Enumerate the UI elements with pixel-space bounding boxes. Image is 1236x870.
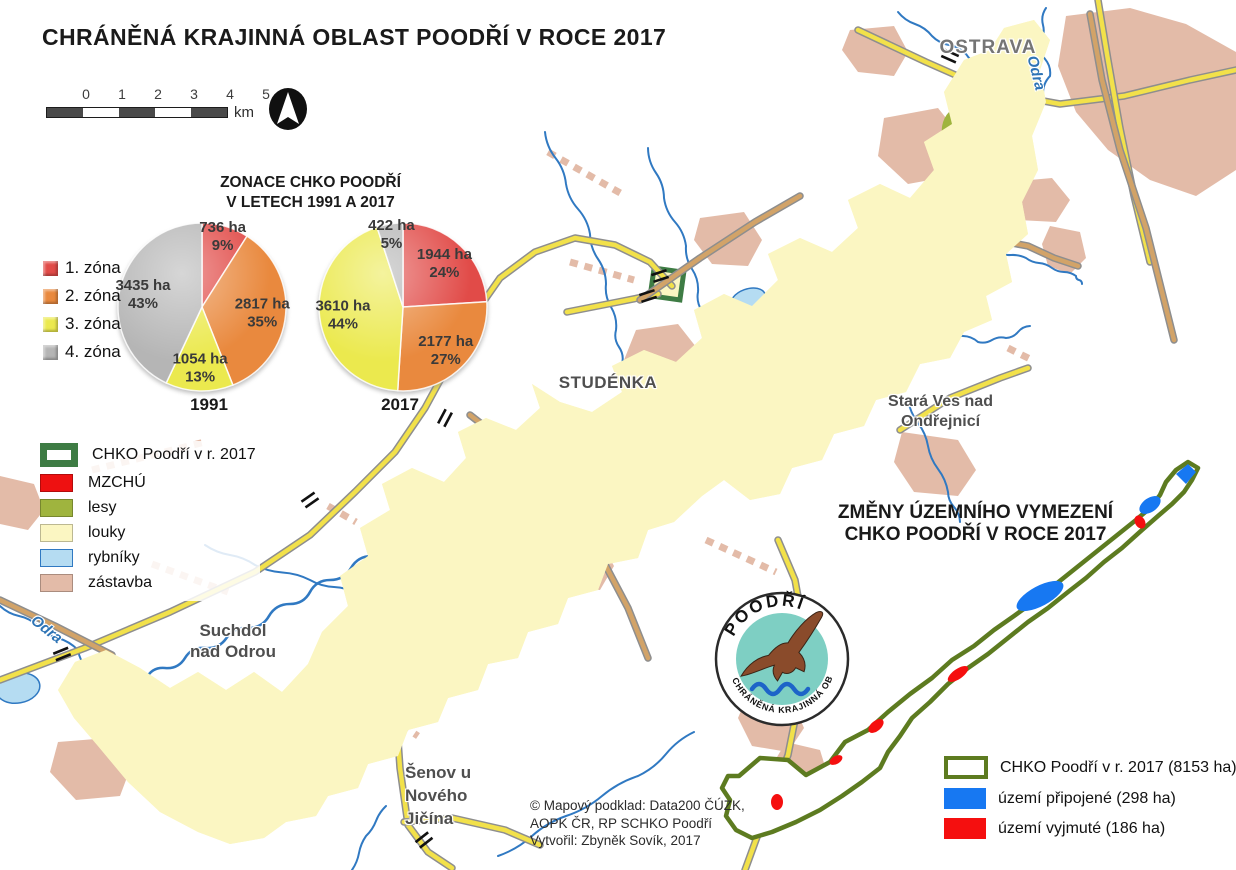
zone4-swatch bbox=[43, 345, 58, 360]
inset-chko-label: CHKO Poodří v r. 2017 (8153 ha) bbox=[1000, 759, 1236, 777]
credits: © Mapový podklad: Data200 ČÚZK, AOPK ČR,… bbox=[530, 797, 745, 850]
scale-tick: 0 bbox=[76, 86, 96, 102]
scale-tick: 3 bbox=[184, 86, 204, 102]
senov-line2: Nového bbox=[405, 785, 500, 808]
pie-year-2017: 2017 bbox=[365, 395, 435, 415]
inset-legend-row-removed: území vyjmuté (186 ha) bbox=[944, 818, 1236, 839]
credits-line2: AOPK ČR, RP SCHKO Poodří bbox=[530, 815, 745, 833]
zone-legend-row: 2. zóna bbox=[43, 286, 121, 306]
zone2-label: 2. zóna bbox=[65, 286, 121, 306]
poodri-logo: POODŘÍ CHRÁNĚNÁ KRAJINNÁ OBLAST bbox=[712, 589, 852, 729]
inset-legend-row-chko: CHKO Poodří v r. 2017 (8153 ha) bbox=[944, 756, 1236, 779]
legend-row-mzchu: MZCHÚ bbox=[40, 474, 256, 492]
scale-unit: km bbox=[234, 104, 254, 121]
louky-label: louky bbox=[88, 524, 125, 542]
chko-boundary-swatch bbox=[40, 443, 78, 467]
legend-row-louky: louky bbox=[40, 524, 256, 542]
lesy-label: lesy bbox=[88, 499, 116, 517]
zone-legend-row: 1. zóna bbox=[43, 258, 121, 278]
city-label-senov: Šenov u Nového Jičína bbox=[405, 762, 500, 831]
map-legend: CHKO Poodří v r. 2017 MZCHÚ lesy louky r… bbox=[40, 441, 260, 601]
zone1-label: 1. zóna bbox=[65, 258, 121, 278]
inset-annexed-swatch bbox=[944, 788, 986, 809]
zone-legend-row: 3. zóna bbox=[43, 314, 121, 334]
scale-tick: 4 bbox=[220, 86, 240, 102]
scale-tick: 1 bbox=[112, 86, 132, 102]
suchdol-line1: Suchdol bbox=[168, 620, 298, 641]
zone-legend-row: 4. zóna bbox=[43, 342, 121, 362]
zone4-label: 4. zóna bbox=[65, 342, 121, 362]
rybniky-swatch bbox=[40, 549, 73, 567]
north-arrow-icon bbox=[266, 85, 310, 133]
suchdol-line2: nad Odrou bbox=[168, 641, 298, 662]
legend-row-lesy: lesy bbox=[40, 499, 256, 517]
louky-swatch bbox=[40, 524, 73, 542]
legend-row-rybniky: rybníky bbox=[40, 549, 256, 567]
stara-ves-line2: Ondřejnicí bbox=[868, 412, 1013, 432]
inset-title-line2: CHKO POODŘÍ V ROCE 2017 bbox=[828, 524, 1123, 546]
scale-bar: 0 1 2 3 4 5 km bbox=[40, 86, 300, 132]
mzchu-swatch bbox=[40, 474, 73, 492]
mzchu-label: MZCHÚ bbox=[88, 474, 146, 492]
zone3-swatch bbox=[43, 317, 58, 332]
inset-removed-label: území vyjmuté (186 ha) bbox=[998, 820, 1165, 838]
zastavba-label: zástavba bbox=[88, 574, 152, 592]
inset-removed-swatch bbox=[944, 818, 986, 839]
scale-tick: 2 bbox=[148, 86, 168, 102]
city-label-stara-ves: Stará Ves nad Ondřejnicí bbox=[868, 392, 1013, 432]
inset-annexed-label: území připojené (298 ha) bbox=[998, 790, 1176, 808]
pie-2017: 1944 ha24%2177 ha27%3610 ha44%422 ha5% bbox=[315, 217, 488, 394]
page-title: CHRÁNĚNÁ KRAJINNÁ OBLAST POODŘÍ V ROCE 2… bbox=[42, 24, 666, 51]
inset-chko-swatch bbox=[944, 756, 988, 779]
zonation-title: ZONACE CHKO POODŘÍ V LETECH 1991 A 2017 bbox=[168, 173, 453, 213]
chko-boundary-label: CHKO Poodří v r. 2017 bbox=[92, 446, 256, 464]
zone2-swatch bbox=[43, 289, 58, 304]
zone3-label: 3. zóna bbox=[65, 314, 121, 334]
lesy-swatch bbox=[40, 499, 73, 517]
zone1-swatch bbox=[43, 261, 58, 276]
zonation-pie-charts: 736 ha9%2817 ha35%1054 ha13%3435 ha43% 1… bbox=[95, 200, 515, 400]
stara-ves-line1: Stará Ves nad bbox=[868, 392, 1013, 412]
inset-legend: CHKO Poodří v r. 2017 (8153 ha) území př… bbox=[944, 756, 1236, 848]
senov-line3: Jičína bbox=[405, 808, 500, 831]
zonation-title-line2: V LETECH 1991 A 2017 bbox=[168, 193, 453, 213]
zastavba-swatch bbox=[40, 574, 73, 592]
inset-title-line1: ZMĚNY ÚZEMNÍHO VYMEZENÍ bbox=[828, 502, 1123, 524]
pie-1991: 736 ha9%2817 ha35%1054 ha13%3435 ha43% bbox=[115, 219, 290, 394]
inset-title: ZMĚNY ÚZEMNÍHO VYMEZENÍ CHKO POODŘÍ V RO… bbox=[828, 502, 1123, 546]
scale-strip bbox=[46, 107, 228, 118]
zonation-title-line1: ZONACE CHKO POODŘÍ bbox=[168, 173, 453, 193]
rybniky-label: rybníky bbox=[88, 549, 140, 567]
zonation-legend: 1. zóna 2. zóna 3. zóna 4. zóna bbox=[43, 258, 121, 370]
credits-line1: © Mapový podklad: Data200 ČÚZK, bbox=[530, 797, 745, 815]
city-label-studenka: STUDÉNKA bbox=[543, 372, 673, 393]
pie-year-1991: 1991 bbox=[174, 395, 244, 415]
city-label-suchdol: Suchdol nad Odrou bbox=[168, 620, 298, 663]
senov-line1: Šenov u bbox=[405, 762, 500, 785]
map-poster: { "title": "CHRÁNĚNÁ KRAJINNÁ OBLAST POO… bbox=[0, 0, 1236, 870]
legend-row-chko: CHKO Poodří v r. 2017 bbox=[40, 443, 256, 467]
inset-legend-row-annexed: území připojené (298 ha) bbox=[944, 788, 1236, 809]
credits-line3: Vytvořil: Zbyněk Sovík, 2017 bbox=[530, 832, 745, 850]
legend-row-zastavba: zástavba bbox=[40, 574, 256, 592]
